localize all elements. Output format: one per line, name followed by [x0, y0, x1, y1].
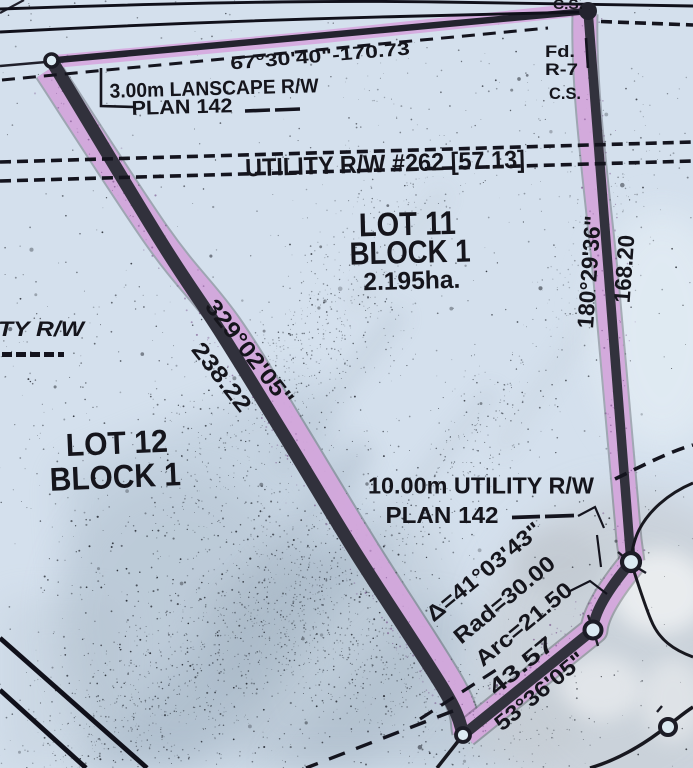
svg-text:BLOCK 1: BLOCK 1	[49, 455, 181, 498]
svg-text:168.20: 168.20	[609, 234, 640, 304]
svg-text:C.S.: C.S.	[549, 84, 581, 103]
svg-text:2.195ha.: 2.195ha.	[363, 266, 461, 297]
svg-text:TY R/W: TY R/W	[0, 318, 87, 341]
svg-text:C.S.: C.S.	[553, 0, 583, 12]
svg-text:PLAN 142: PLAN 142	[386, 502, 499, 528]
svg-text:10.00m UTILITY R/W: 10.00m UTILITY R/W	[368, 473, 594, 499]
svg-text:PLAN 142: PLAN 142	[131, 95, 233, 120]
svg-text:R-7: R-7	[545, 60, 578, 79]
svg-text:Fd.: Fd.	[545, 42, 575, 61]
